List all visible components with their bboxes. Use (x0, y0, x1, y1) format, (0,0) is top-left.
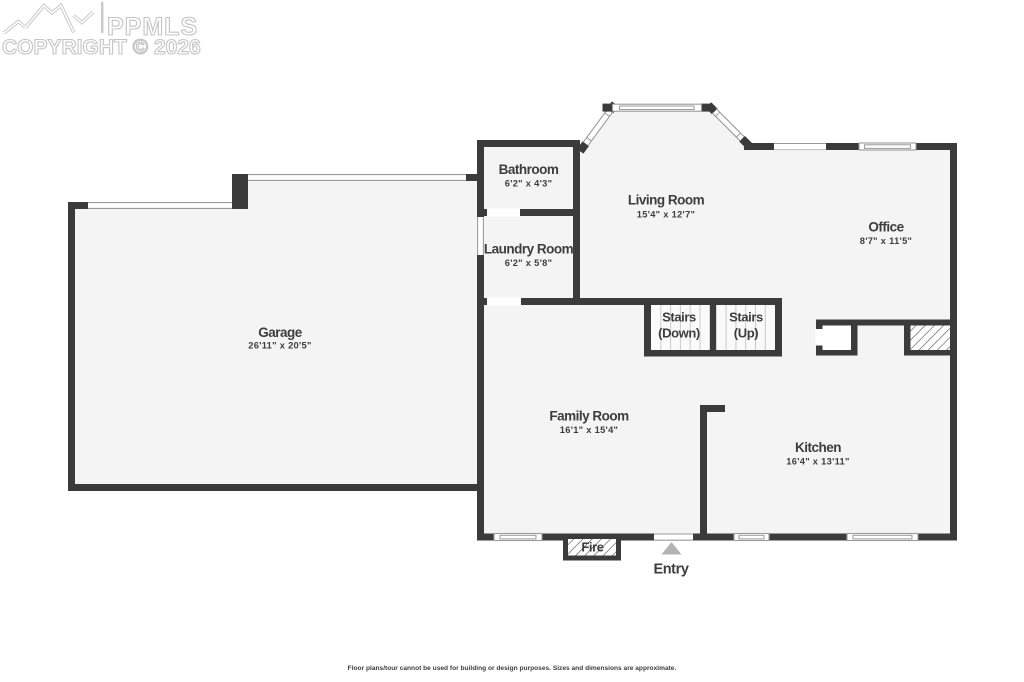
svg-text:Entry: Entry (653, 562, 688, 578)
svg-text:(Down): (Down) (658, 326, 700, 341)
svg-text:Office: Office (868, 220, 904, 235)
svg-text:Garage: Garage (258, 325, 303, 340)
svg-text:26'11" x 20'5": 26'11" x 20'5" (248, 341, 311, 351)
svg-text:COPYRIGHT © 2026: COPYRIGHT © 2026 (2, 36, 201, 59)
svg-text:Stairs: Stairs (662, 310, 696, 325)
svg-text:Laundry Room: Laundry Room (484, 242, 574, 257)
svg-text:15'4" x 12'7": 15'4" x 12'7" (637, 210, 696, 220)
svg-text:Floor plans/tour cannot be use: Floor plans/tour cannot be used for buil… (348, 665, 677, 672)
svg-text:Bathroom: Bathroom (499, 162, 559, 177)
svg-text:8'7" x 11'5": 8'7" x 11'5" (860, 236, 913, 246)
svg-text:16'4" x 13'11": 16'4" x 13'11" (786, 457, 849, 467)
svg-text:Living Room: Living Room (628, 193, 705, 208)
svg-text:Family Room: Family Room (549, 409, 629, 424)
svg-text:Kitchen: Kitchen (795, 440, 841, 455)
svg-text:16'1" x 15'4": 16'1" x 15'4" (560, 425, 619, 435)
svg-text:(Up): (Up) (734, 326, 758, 341)
svg-text:Fire: Fire (581, 540, 603, 555)
svg-text:6'2" x 5'8": 6'2" x 5'8" (505, 258, 553, 268)
svg-text:Stairs: Stairs (729, 310, 763, 325)
svg-text:6'2" x 4'3": 6'2" x 4'3" (505, 179, 553, 189)
